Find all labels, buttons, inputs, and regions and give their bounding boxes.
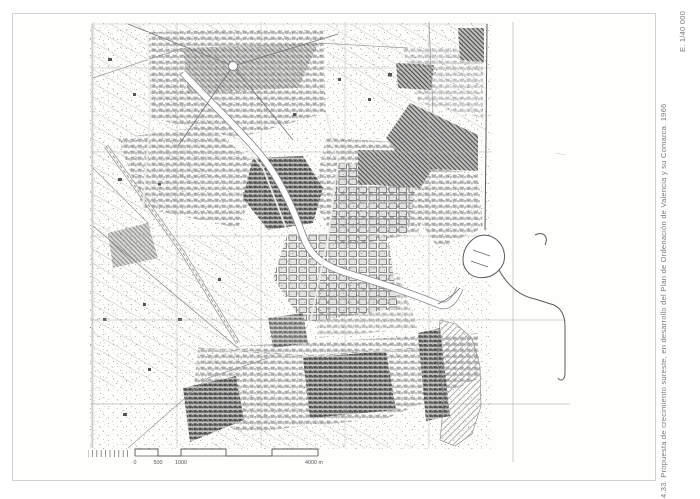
scale-label-0: 0 — [134, 460, 137, 466]
scale-label-4000m: 4000 m — [305, 460, 323, 466]
scale-bar: 0 500 1000 4000 m — [88, 449, 323, 466]
map-scale-note: E. 1/40 000 — [678, 8, 687, 52]
scanned-page: 0 500 1000 4000 m 4.33. Propuesta de cre… — [0, 0, 700, 499]
valencia-city-map: 0 500 1000 4000 m — [88, 18, 570, 466]
figure-caption: 4.33. Propuesta de crecimiento sureste, … — [659, 86, 668, 498]
scale-label-1000: 1000 — [175, 460, 187, 466]
scale-label-500: 500 — [154, 460, 163, 466]
